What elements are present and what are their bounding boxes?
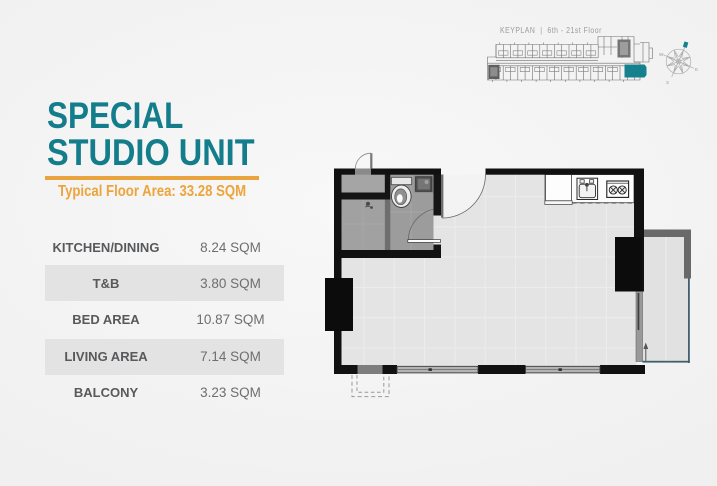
- svg-text:E: E: [695, 67, 698, 72]
- svg-text:S: S: [666, 80, 669, 85]
- svg-text:W: W: [659, 52, 664, 57]
